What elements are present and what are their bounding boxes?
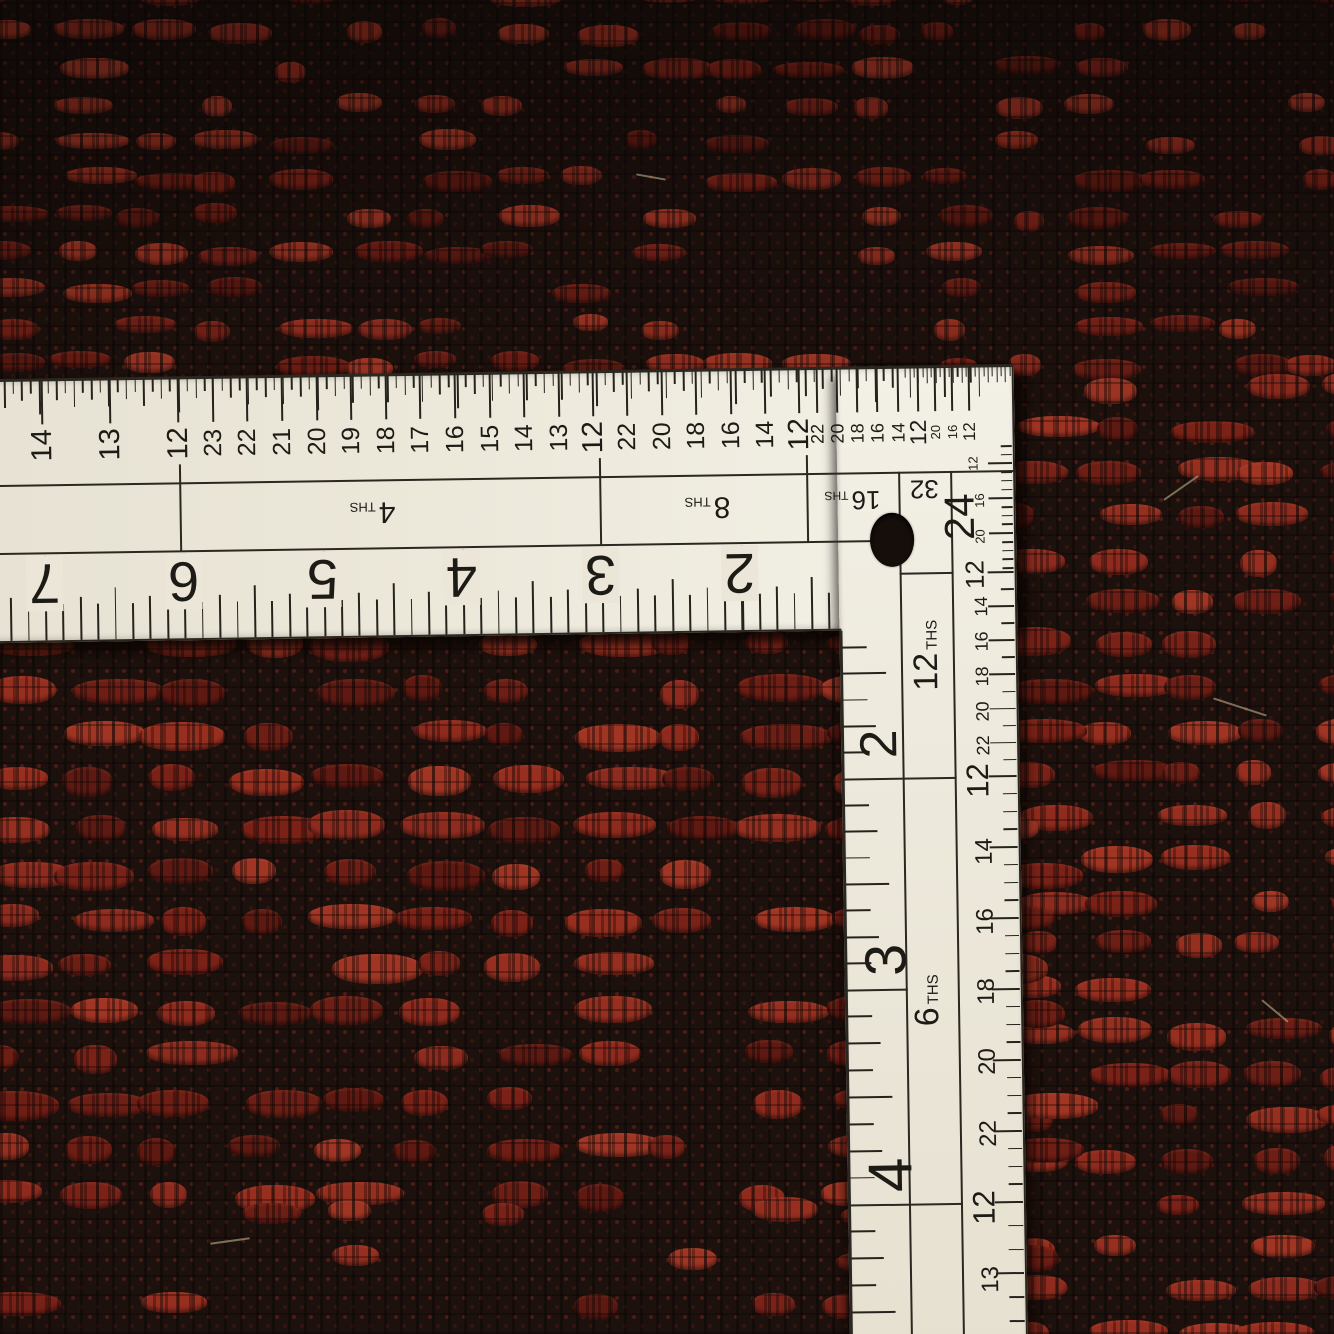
tick-mark (1003, 567, 1014, 569)
denominator-label-6ths: 6THS (910, 974, 945, 1026)
tick-mark (761, 370, 763, 383)
tick-mark (517, 373, 519, 386)
tick-mark (99, 380, 101, 393)
tick-mark (905, 368, 906, 378)
tick-mark (1005, 935, 1019, 937)
outer-scale-number-thirds: 13 (979, 1266, 1003, 1293)
tick-mark (1002, 558, 1013, 560)
tick-mark (274, 377, 276, 390)
top-scale-number-thirtyseconds: 20 (929, 425, 942, 440)
tick-mark (849, 1123, 874, 1125)
tick-mark (369, 376, 371, 396)
tick-mark (842, 646, 867, 648)
tick-mark (230, 378, 232, 398)
tick-mark (117, 379, 119, 392)
outer-scale-number-twentyfourths: 12 (966, 456, 979, 471)
tick-mark (846, 910, 871, 912)
tick-mark (1006, 1006, 1020, 1008)
tick-mark (1001, 588, 1014, 590)
tick-mark (940, 367, 941, 377)
tick-mark (535, 373, 537, 386)
tick-mark (47, 380, 49, 393)
rug-photo-scene: 1413122322212019181716151413122220181614… (0, 0, 1334, 1334)
tick-mark (1008, 1148, 1022, 1150)
tick-mark (1005, 366, 1006, 382)
top-scale-number-fourths: 23 (201, 429, 226, 457)
tick-mark (448, 374, 450, 387)
outer-scale-number-sixths: 20 (976, 1048, 1000, 1075)
denominator-label-16ths-value: 16 (851, 485, 880, 515)
tick-mark (204, 378, 206, 391)
tick-mark (1007, 1041, 1021, 1043)
top-scale-number-sixteenths: 20 (828, 423, 846, 443)
top-scale-number-fourths: 18 (374, 426, 399, 454)
outer-scale-number-twelfths: 12 (961, 560, 987, 589)
tick-mark (169, 379, 171, 392)
tick-mark (1008, 1112, 1022, 1114)
tick-mark (1002, 541, 1013, 543)
tick-mark (948, 367, 949, 377)
tick-mark (1002, 550, 1013, 552)
tick-mark (848, 368, 850, 381)
tick-mark (1001, 480, 1012, 482)
tick-mark (674, 371, 676, 384)
tick-mark (926, 367, 927, 383)
tick-mark (587, 372, 589, 385)
tick-mark (974, 367, 975, 377)
top-scale-number-fourths: 22 (235, 428, 260, 456)
tick-mark (221, 378, 223, 391)
tick-mark (578, 372, 580, 392)
tick-mark (996, 366, 997, 382)
outer-scale-number-twentyfourths: 20 (973, 529, 986, 544)
tick-mark (726, 370, 728, 383)
tick-mark (326, 376, 328, 389)
tick-mark (300, 377, 302, 397)
tick-mark (604, 372, 606, 385)
outer-scale-number-sixths: 14 (973, 838, 997, 865)
tick-mark (1001, 489, 1012, 491)
tick-mark (395, 375, 397, 388)
inch-number-horizontal: 7 (26, 555, 64, 612)
tick-mark (1004, 881, 1018, 883)
tick-mark (683, 371, 685, 391)
top-scale-number-fourths: 15 (478, 425, 503, 453)
tick-mark (404, 375, 406, 395)
top-scale-number-fourths: 12 (579, 421, 608, 454)
tick-mark (343, 376, 345, 389)
tick-mark (256, 377, 258, 390)
tick-mark (848, 1069, 873, 1071)
tick-mark (778, 369, 780, 382)
top-scale-number-thirtyseconds: 16 (946, 425, 959, 440)
tick-mark (12, 381, 14, 394)
tick-mark (622, 372, 624, 385)
top-scale-number-fourths: 20 (305, 427, 330, 455)
inch-number-horizontal: 4 (443, 549, 481, 606)
inch-number-vertical: 3 (857, 943, 915, 976)
denominator-label-6ths-value: 6 (908, 1007, 946, 1026)
inch-number-vertical: 2 (853, 729, 905, 759)
inch-number-vertical: 4 (860, 1157, 923, 1192)
tick-mark (413, 375, 415, 388)
top-scale-number-halves: 13 (96, 428, 125, 461)
tick-mark (378, 375, 380, 388)
tick-mark (126, 379, 128, 399)
tick-mark (913, 367, 914, 377)
tick-mark (961, 367, 962, 383)
top-scale-number-halves: 14 (28, 429, 57, 462)
outer-scale-number-thirds: 12 (968, 1190, 1000, 1225)
top-scale-number-fourths: 13 (547, 424, 572, 452)
denominator-label-8ths-suffix: THS (685, 495, 711, 510)
tick-mark (91, 380, 93, 400)
tick-mark (152, 379, 154, 392)
tick-mark (1004, 864, 1018, 866)
tick-mark (334, 376, 336, 396)
tick-mark (752, 370, 754, 390)
tick-mark (1003, 759, 1016, 761)
tick-mark (992, 366, 993, 376)
outer-scale-number-twelfths: 18 (973, 666, 991, 686)
top-scale-number-fourths: 17 (408, 426, 433, 454)
tick-mark (1009, 1296, 1024, 1298)
top-scale-number-eighths: 18 (684, 422, 709, 450)
tick-mark (883, 368, 885, 381)
denominator-label-4ths-suffix: THS (350, 499, 376, 514)
tick-mark (613, 372, 615, 392)
tick-mark (987, 366, 988, 382)
denominator-label-16ths: 16THS (824, 487, 880, 514)
tick-mark (1009, 1183, 1023, 1185)
tick-mark (709, 371, 711, 384)
carpet-knot-dash (1235, 1322, 1315, 1334)
tick-mark (195, 378, 197, 398)
tick-mark (30, 381, 32, 394)
tick-mark (1007, 1094, 1021, 1096)
tick-mark (957, 367, 958, 377)
tick-mark (639, 372, 641, 385)
outer-scale-number-twelfths: 20 (974, 701, 992, 721)
outer-scale-number-sixths: 16 (974, 908, 998, 935)
tick-mark (822, 369, 824, 389)
denominator-label-8ths-value: 8 (714, 490, 731, 523)
tick-mark (1001, 445, 1012, 447)
top-scale-number-eighths: 16 (719, 421, 744, 449)
denominator-label-6ths-suffix: THS (925, 974, 942, 1004)
tick-mark (845, 857, 870, 859)
tick-mark (1005, 952, 1019, 954)
tick-mark (482, 374, 484, 387)
tick-mark (787, 369, 789, 389)
tick-mark (1003, 725, 1016, 727)
tick-mark (1007, 1077, 1021, 1079)
tick-mark (718, 370, 720, 390)
tick-mark (56, 380, 58, 400)
tick-mark (439, 375, 441, 395)
tick-mark (1009, 366, 1010, 376)
carpet-knot-dash (1089, 1320, 1168, 1334)
top-scale-number-fourths: 19 (339, 427, 364, 455)
tick-mark (983, 366, 984, 376)
tick-mark (1002, 656, 1015, 658)
tick-mark (430, 375, 432, 388)
tick-mark (291, 377, 293, 390)
tick-mark (892, 368, 894, 388)
tick-mark (1001, 454, 1012, 456)
tick-mark (866, 368, 868, 381)
tick-mark (543, 373, 545, 393)
tick-mark (851, 1284, 876, 1286)
top-scale-number-eighths: 22 (615, 423, 640, 451)
tick-mark (931, 367, 932, 377)
outer-scale-number-twelfths: 16 (972, 631, 990, 651)
tick-mark (844, 804, 869, 806)
tick-mark (970, 367, 971, 383)
tick-mark (308, 376, 310, 389)
tick-mark (1001, 471, 1012, 473)
tick-mark (65, 380, 67, 393)
tick-mark (657, 371, 659, 384)
tick-mark (500, 374, 502, 387)
tick-mark (953, 367, 954, 383)
tick-mark (842, 699, 867, 701)
denominator-label-4ths: 4THS (350, 496, 396, 527)
outer-scale-number-sixths: 22 (977, 1120, 1001, 1147)
tick-mark (744, 370, 746, 383)
top-scale-number-halves: 12 (164, 427, 193, 460)
top-scale-number-sixteenths: 22 (808, 424, 826, 444)
outer-scale-number-twelfths: 22 (974, 735, 992, 755)
tick-mark (1002, 691, 1015, 693)
tick-mark (21, 381, 23, 401)
tick-mark (239, 377, 241, 390)
top-scale-number-eighths: 20 (650, 422, 675, 450)
tick-mark (570, 373, 572, 386)
tick-mark (134, 379, 136, 392)
tick-mark (1003, 828, 1017, 830)
denominator-label-4ths-value: 4 (379, 495, 396, 528)
tick-mark (847, 1016, 872, 1018)
tick-mark (465, 374, 467, 387)
tick-mark (1009, 1249, 1024, 1251)
tick-mark (1006, 970, 1020, 972)
denominator-label-16ths-suffix: THS (824, 488, 848, 502)
top-scale-number-sixteenths: 18 (848, 423, 866, 443)
tick-mark (850, 1230, 875, 1232)
inch-number-horizontal: 6 (165, 553, 203, 610)
tick-mark (1001, 622, 1014, 624)
denominator-label-12ths-value: 12 (907, 653, 946, 691)
inch-number-horizontal: 3 (582, 547, 620, 604)
hanging-hole (870, 513, 915, 568)
tick-mark (1000, 366, 1001, 376)
tick-mark (361, 376, 363, 389)
tick-mark (1008, 1165, 1022, 1167)
inch-number-horizontal: 5 (304, 551, 342, 608)
tick-mark (922, 367, 923, 377)
outer-scale-number-sixths: 12 (962, 763, 994, 798)
top-scale-number-sixteenths: 16 (868, 423, 886, 443)
outer-scale-number-twentyfourths: 16 (973, 493, 986, 508)
denominator-label-8ths: 8THS (685, 491, 731, 522)
inch-number-horizontal: 2 (721, 545, 759, 602)
tick-mark (82, 380, 84, 393)
tick-mark (1003, 811, 1017, 813)
top-scale-number-eighths: 14 (753, 421, 778, 449)
framing-square-ruler: 1413122322212019181716151413122220181614… (0, 0, 1334, 1334)
top-scale-number-fourths: 21 (270, 428, 295, 456)
tick-mark (691, 371, 693, 384)
tick-mark (1003, 793, 1017, 795)
tick-mark (265, 377, 267, 397)
top-scale-number-sixteenths: 12 (907, 419, 930, 445)
tick-mark (474, 374, 476, 394)
tick-mark (1002, 515, 1013, 517)
tick-mark (1010, 1320, 1025, 1322)
tick-mark (1008, 1225, 1023, 1227)
denominator-label-12ths: 12THS (908, 620, 943, 691)
tick-mark (1006, 1023, 1020, 1025)
top-scale-number-thirtyseconds: 12 (961, 422, 978, 441)
tick-mark (160, 379, 162, 399)
denominator-label-12ths-suffix: THS (923, 620, 940, 650)
tick-mark (648, 371, 650, 391)
tick-mark (1004, 899, 1018, 901)
top-scale-number-fourths: 14 (512, 424, 537, 452)
tick-mark (831, 369, 833, 382)
outer-scale-number-sixths: 18 (975, 978, 999, 1005)
top-scale-number-fourths: 16 (443, 425, 468, 453)
tick-mark (1002, 524, 1013, 526)
tick-mark (552, 373, 554, 386)
tick-mark (186, 378, 188, 391)
tick-mark (509, 373, 511, 393)
tick-mark (1002, 506, 1013, 508)
